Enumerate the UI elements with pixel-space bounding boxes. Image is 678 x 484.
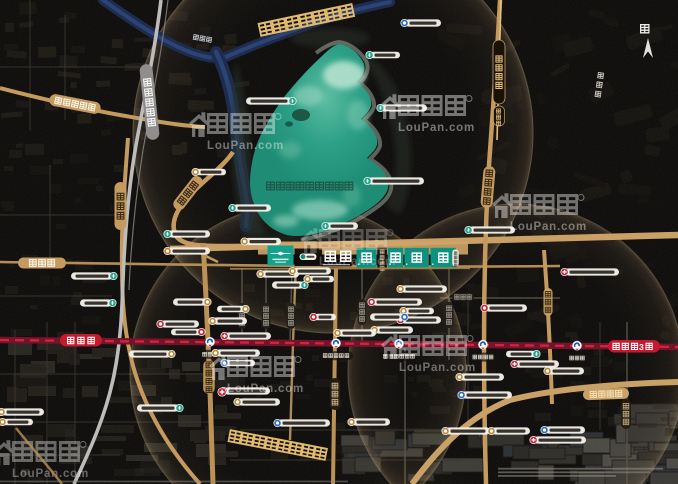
svg-text:3: 3: [639, 342, 644, 352]
